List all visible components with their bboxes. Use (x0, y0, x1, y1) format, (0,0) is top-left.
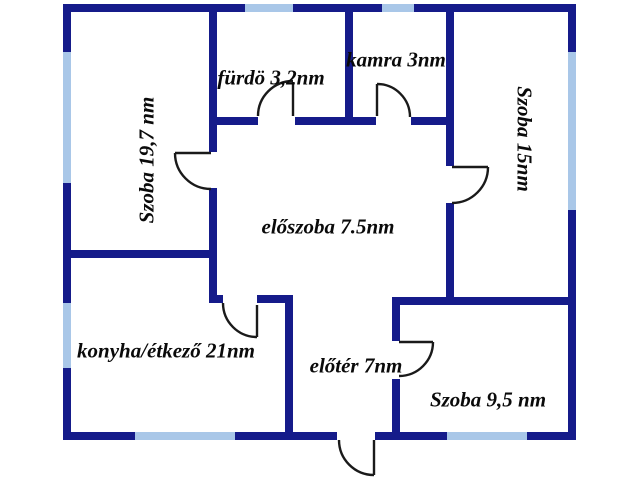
floor-plan: Szoba 19,7 nm fürdö 3,2nm kamra 3nm Szob… (0, 0, 640, 480)
room-label-furdo: fürdö 3,2nm (217, 66, 324, 91)
door-arc-szoba197 (175, 153, 211, 189)
room-label-konyha: konyha/étkező 21nm (77, 339, 255, 364)
doors (175, 81, 488, 475)
room-label-szoba-95: Szoba 9,5 nm (430, 388, 546, 413)
wall-furdo-bottom-left (217, 117, 258, 125)
wall-szoba15-left-lower (446, 203, 454, 305)
wall-szoba95-left-upper (392, 297, 400, 341)
door-arc-kamra (377, 84, 410, 117)
window-furdo-top (245, 4, 293, 12)
wall-szoba15-left-upper (446, 12, 454, 166)
window-szoba197-left (63, 52, 71, 183)
window-szoba15-right (568, 52, 576, 210)
wall-furdo-bottom-mid (295, 117, 376, 125)
room-label-szoba-15: Szoba 15nm (512, 86, 537, 192)
wall-szoba15-bottom (392, 297, 576, 305)
room-label-szoba-19-7: Szoba 19,7 nm (135, 97, 160, 224)
wall-konyha-right (285, 295, 293, 440)
window-kamra-top (382, 4, 414, 12)
wall-szoba197-upper (209, 12, 217, 152)
wall-konyha-top (71, 250, 209, 258)
wall-szoba95-left-lower (392, 379, 400, 440)
window-konyha-left (63, 303, 71, 368)
door-arc-szoba95 (399, 342, 433, 376)
window-konyha-bottom (135, 432, 235, 440)
wall-konyha-door-left-stub (209, 295, 223, 303)
door-arc-konyha (223, 303, 257, 337)
window-szoba95-bottom (447, 432, 527, 440)
door-arc-szoba15 (452, 167, 488, 203)
wall-outer-top (63, 4, 576, 12)
door-arc-entrance (339, 440, 374, 475)
room-label-eloter: előtér 7nm (310, 354, 403, 379)
wall-szoba197-lower (209, 188, 217, 303)
room-label-eloszoba: előszoba 7.5nm (261, 215, 394, 240)
room-label-kamra: kamra 3nm (346, 48, 446, 73)
